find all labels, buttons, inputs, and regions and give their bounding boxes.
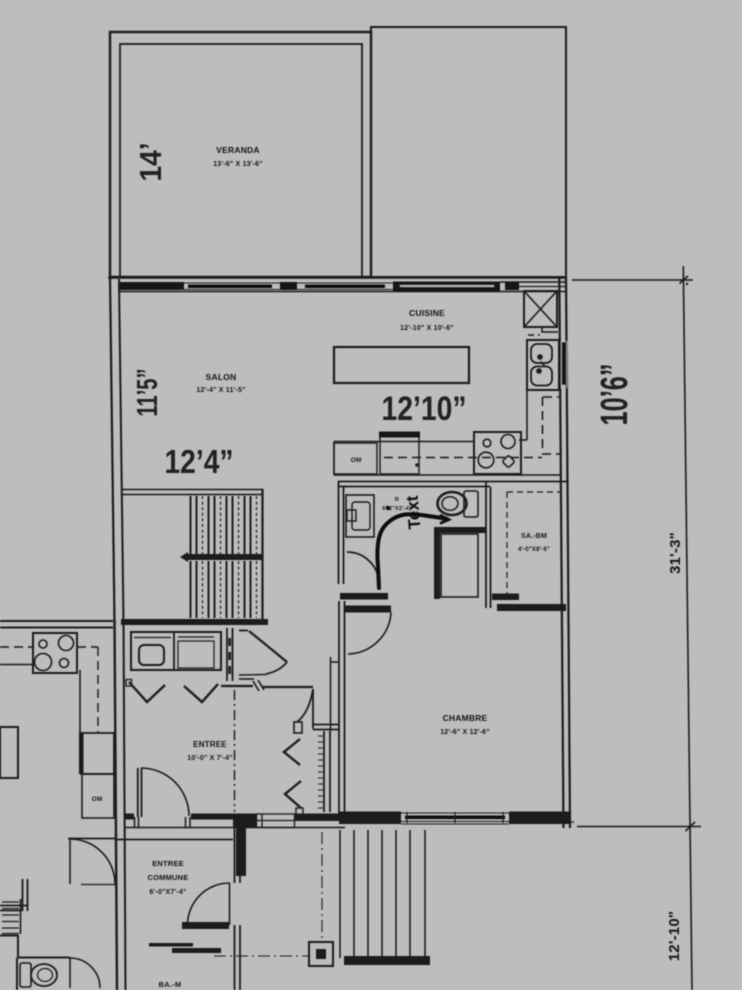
- svg-text:COMMUNE: COMMUNE: [148, 873, 189, 882]
- svg-text:13'-6" X 13'-6": 13'-6" X 13'-6": [213, 161, 263, 168]
- svg-text:31'-3": 31'-3": [667, 532, 684, 574]
- svg-text:BA.-M: BA.-M: [159, 980, 182, 989]
- svg-text:11’5”: 11’5”: [132, 369, 164, 417]
- svg-text:OM: OM: [92, 796, 103, 803]
- svg-text:Text: Text: [403, 495, 425, 531]
- svg-text:VERANDA: VERANDA: [216, 145, 259, 155]
- svg-text:12’10”: 12’10”: [382, 390, 467, 428]
- svg-text:12'-4" X 11'-5": 12'-4" X 11'-5": [196, 387, 245, 394]
- svg-text:6'-0"X7'-4": 6'-0"X7'-4": [149, 889, 186, 896]
- svg-text:CUISINE: CUISINE: [409, 308, 445, 318]
- svg-text:12'-6" X 12'-6": 12'-6" X 12'-6": [440, 729, 490, 736]
- svg-text:ENTREE: ENTREE: [193, 740, 227, 749]
- svg-text:4'-0"X8'-6": 4'-0"X8'-6": [518, 547, 550, 553]
- svg-text:SALON: SALON: [206, 372, 237, 382]
- svg-text:14’: 14’: [133, 143, 168, 182]
- svg-text:10’6”: 10’6”: [594, 364, 636, 426]
- svg-text:12’4”: 12’4”: [165, 443, 234, 480]
- svg-text:OM: OM: [351, 457, 362, 464]
- svg-text:12'-10" X 10'-6": 12'-10" X 10'-6": [400, 325, 454, 332]
- svg-text:SA.-BM: SA.-BM: [521, 533, 547, 540]
- svg-text:R: R: [395, 497, 399, 503]
- svg-text:12'-10": 12'-10": [666, 911, 683, 961]
- svg-text:10'-0" X 7'-4": 10'-0" X 7'-4": [187, 755, 232, 762]
- svg-text:CHAMBRE: CHAMBRE: [443, 713, 488, 723]
- svg-text:ENTREE: ENTREE: [152, 859, 184, 868]
